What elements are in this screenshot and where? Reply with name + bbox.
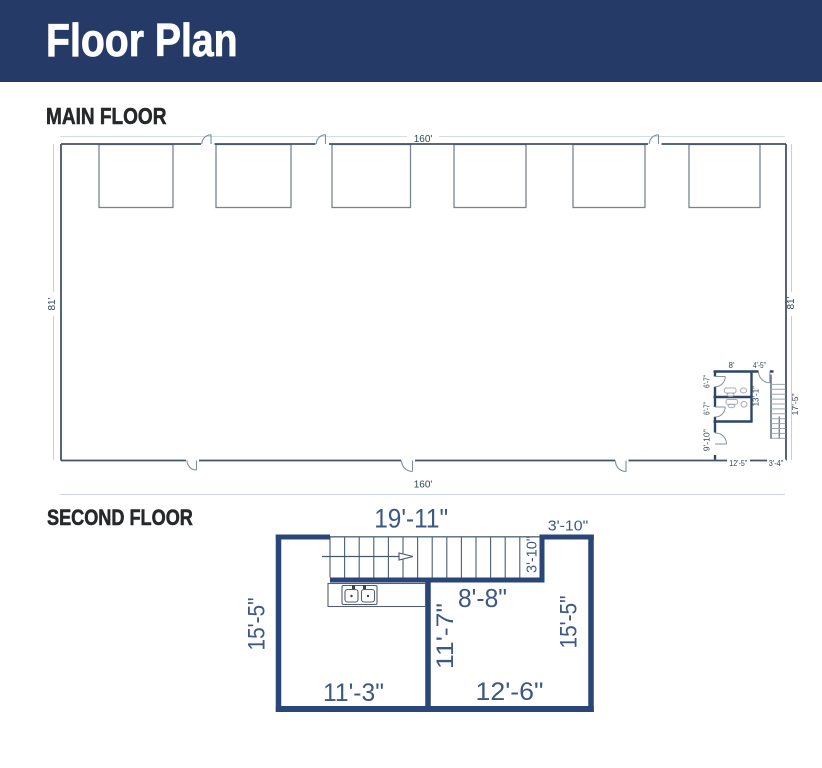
svg-text:6'-7": 6'-7" <box>703 402 712 415</box>
svg-text:81': 81' <box>786 296 797 309</box>
svg-text:8'-8": 8'-8" <box>458 583 507 613</box>
svg-text:13'-1": 13'-1" <box>752 386 761 407</box>
svg-text:11'-7": 11'-7" <box>432 603 459 669</box>
svg-text:160': 160' <box>414 134 433 145</box>
svg-text:6'-7": 6'-7" <box>702 375 711 388</box>
svg-text:4'-5": 4'-5" <box>753 361 766 370</box>
svg-text:160': 160' <box>414 480 433 491</box>
svg-text:11'-3": 11'-3" <box>323 679 384 707</box>
svg-text:12'-6": 12'-6" <box>476 678 544 706</box>
svg-text:17'-5": 17'-5" <box>791 393 800 415</box>
svg-text:9'-10": 9'-10" <box>703 429 712 451</box>
svg-text:15'-5": 15'-5" <box>556 596 583 649</box>
svg-text:8': 8' <box>729 361 735 370</box>
svg-text:3'-10": 3'-10" <box>524 536 540 573</box>
svg-text:3'-10": 3'-10" <box>548 519 589 535</box>
svg-text:19'-11": 19'-11" <box>374 504 448 534</box>
svg-text:81': 81' <box>47 297 58 310</box>
svg-text:3'-4": 3'-4" <box>769 459 784 468</box>
svg-text:12'-5": 12'-5" <box>729 459 747 468</box>
svg-text:15'-5": 15'-5" <box>244 598 271 651</box>
